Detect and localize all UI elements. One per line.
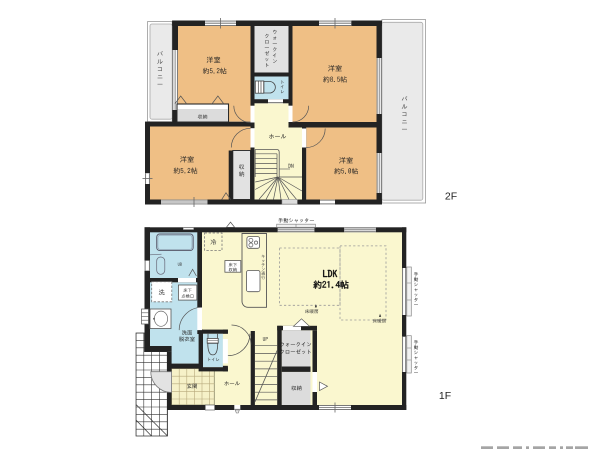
svg-text:1F: 1F — [439, 390, 451, 402]
svg-text:2F: 2F — [445, 191, 457, 203]
